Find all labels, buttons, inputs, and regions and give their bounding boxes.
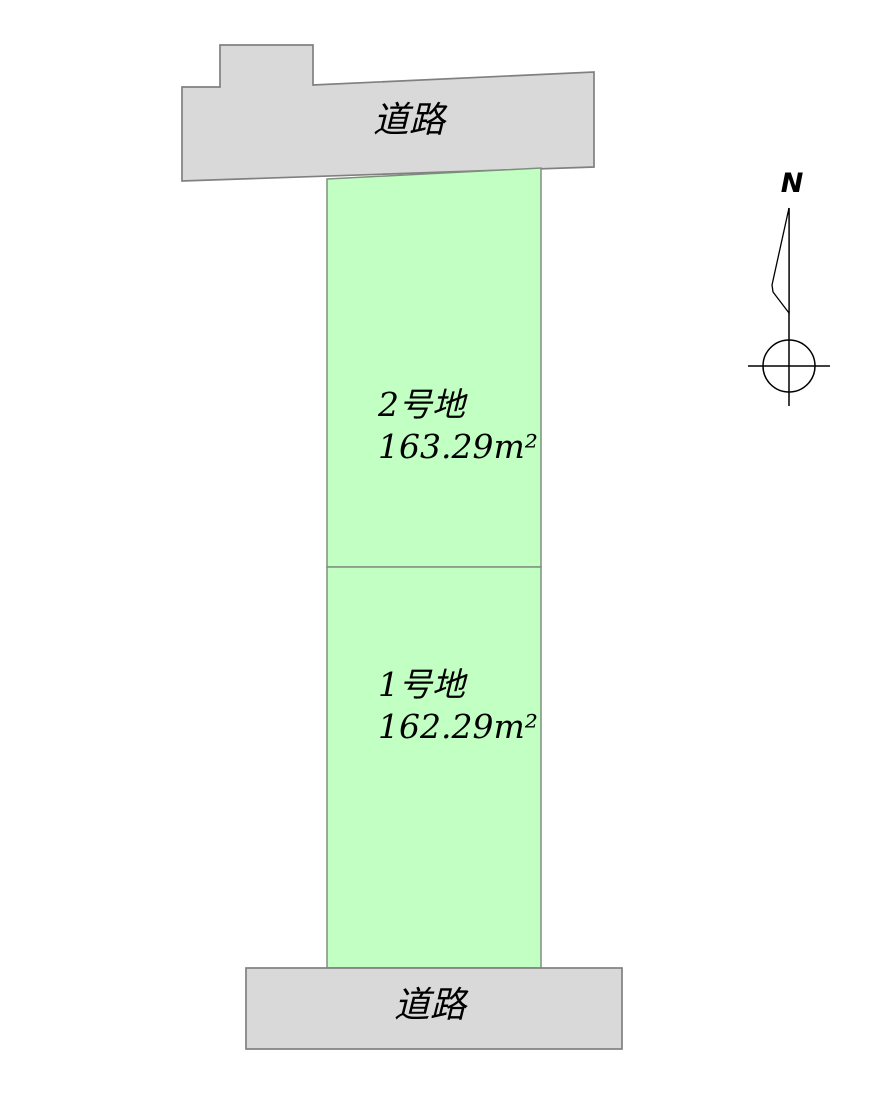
land-plot-diagram: 道路 2号地 163.29m² 1号地 162.29m² 道路 N xyxy=(0,0,872,1108)
north-label: N xyxy=(781,170,804,197)
plot-1-shape xyxy=(327,567,541,968)
plot-2-area: 163.29m² xyxy=(378,426,538,468)
top-road-label: 道路 xyxy=(373,103,445,139)
plot-2-shape xyxy=(327,168,541,567)
compass-pennant-flag xyxy=(772,208,789,313)
plot-1-label: 1号地 162.29m² xyxy=(378,664,538,748)
plot-1-name: 1号地 xyxy=(378,664,538,706)
north-compass xyxy=(748,208,830,406)
plot-2-name: 2号地 xyxy=(378,384,538,426)
plot-1-area: 162.29m² xyxy=(378,706,538,748)
plot-2-label: 2号地 163.29m² xyxy=(378,384,538,468)
diagram-shapes xyxy=(0,0,872,1108)
bottom-road-label: 道路 xyxy=(394,988,466,1024)
